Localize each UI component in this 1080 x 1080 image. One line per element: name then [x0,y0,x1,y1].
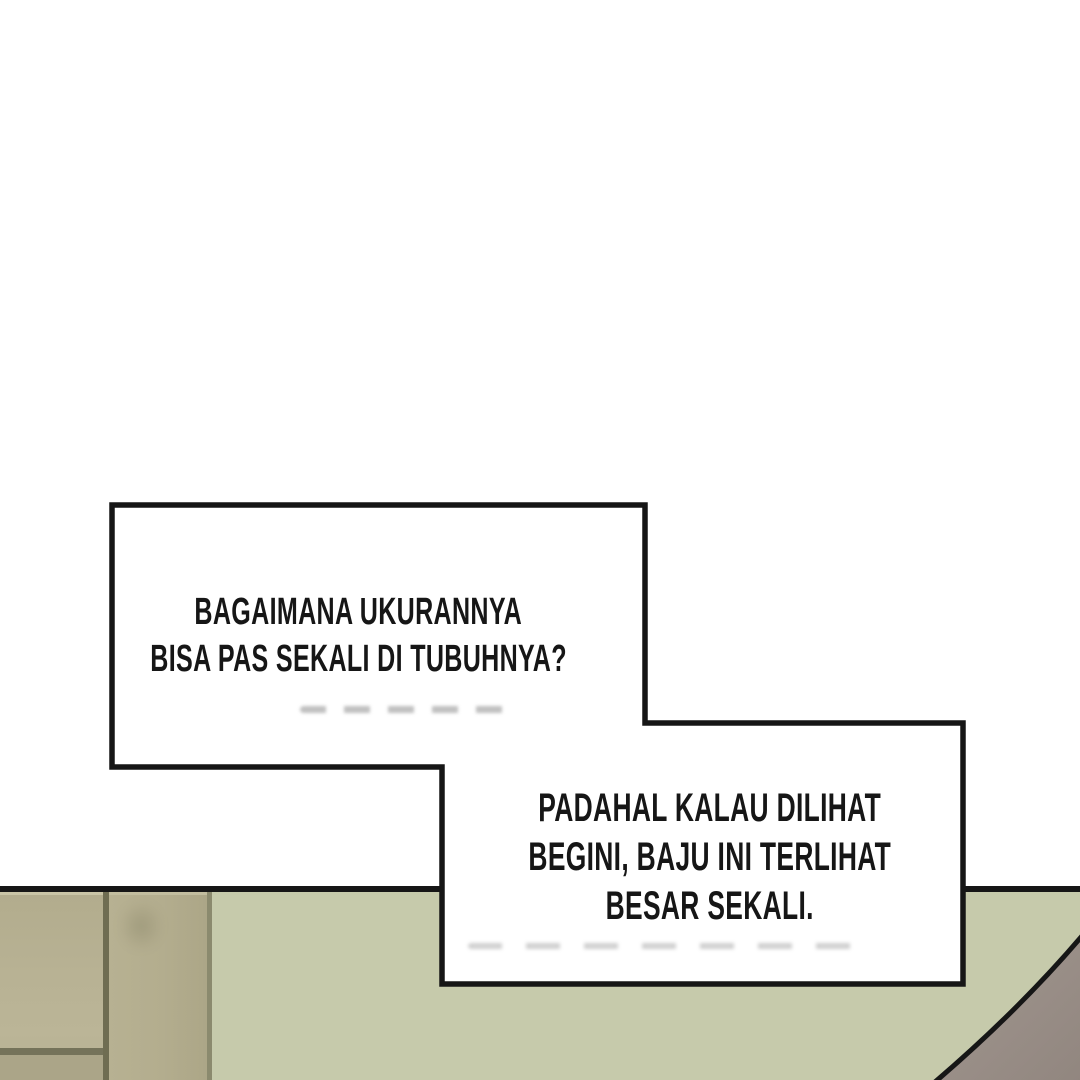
speech-bubble-1-text: BAGAIMANA UKURANNYA BISA PAS SEKALI DI T… [92,507,625,765]
speech-line: BESAR SEKALI. [605,882,813,931]
speech-bubble-2-text: PADAHAL KALAU DILIHAT BEGINI, BAJU INI T… [449,731,970,984]
speech-line: BAGAIMANA UKURANNYA [195,589,523,636]
speech-line: PADAHAL KALAU DILIHAT [538,784,881,833]
speech-line: BEGINI, BAJU INI TERLIHAT [528,833,891,882]
comic-panel: BAGAIMANA UKURANNYA BISA PAS SEKALI DI T… [0,0,1080,1080]
speech-line: BISA PAS SEKALI DI TUBUHNYA? [150,636,567,683]
